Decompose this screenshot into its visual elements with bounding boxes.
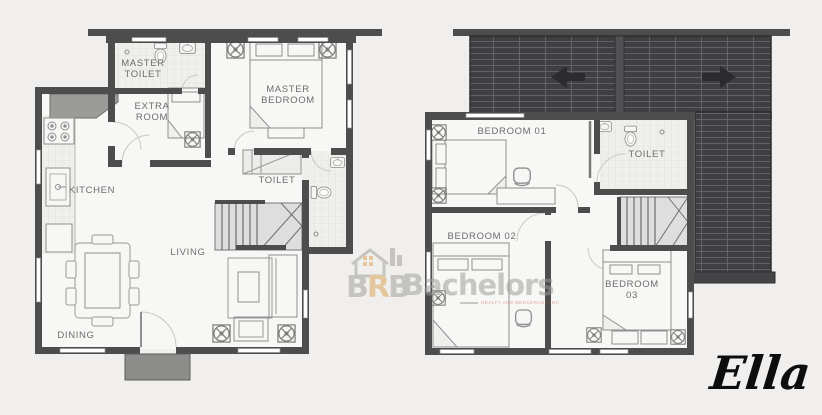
- label-master-bedroom: MASTER BEDROOM: [243, 84, 333, 106]
- label-living: LIVING: [162, 247, 214, 258]
- bedroom2-chair: [516, 310, 532, 327]
- label-extra-room: EXTRA ROOM: [122, 101, 182, 123]
- bedroom1-bed: [432, 140, 506, 194]
- ground-floor-plan: [35, 29, 382, 380]
- label-dining: DINING: [50, 330, 102, 341]
- roof-panel-right: [695, 112, 771, 274]
- label-bedroom-03: BEDROOM 03: [601, 279, 663, 301]
- toilet-tiles: [309, 155, 346, 248]
- roof-edge: [691, 272, 775, 283]
- bedroom1-chair: [514, 168, 531, 186]
- label-master-toilet: MASTER TOILET: [114, 58, 172, 80]
- bedroom1-desk: [497, 188, 555, 204]
- label-kitchen: KITCHEN: [66, 185, 118, 196]
- bedroom2-bed: [433, 243, 509, 347]
- label-toilet-second: TOILET: [620, 149, 674, 160]
- unit-name: Ella: [697, 346, 822, 408]
- second-floor-plan: [425, 29, 790, 355]
- roof-divider: [615, 36, 624, 118]
- floor-plan-canvas: MASTER TOILET EXTRA ROOM MASTER BEDROOM …: [0, 0, 822, 415]
- label-toilet-ground: TOILET: [254, 175, 300, 186]
- roof-ridge: [453, 29, 790, 36]
- porch-step: [125, 354, 190, 380]
- label-bedroom-02: BEDROOM 02: [440, 231, 524, 242]
- dining-set: [66, 235, 139, 326]
- second-stairs: [617, 197, 688, 247]
- label-bedroom-01: BEDROOM 01: [470, 126, 554, 137]
